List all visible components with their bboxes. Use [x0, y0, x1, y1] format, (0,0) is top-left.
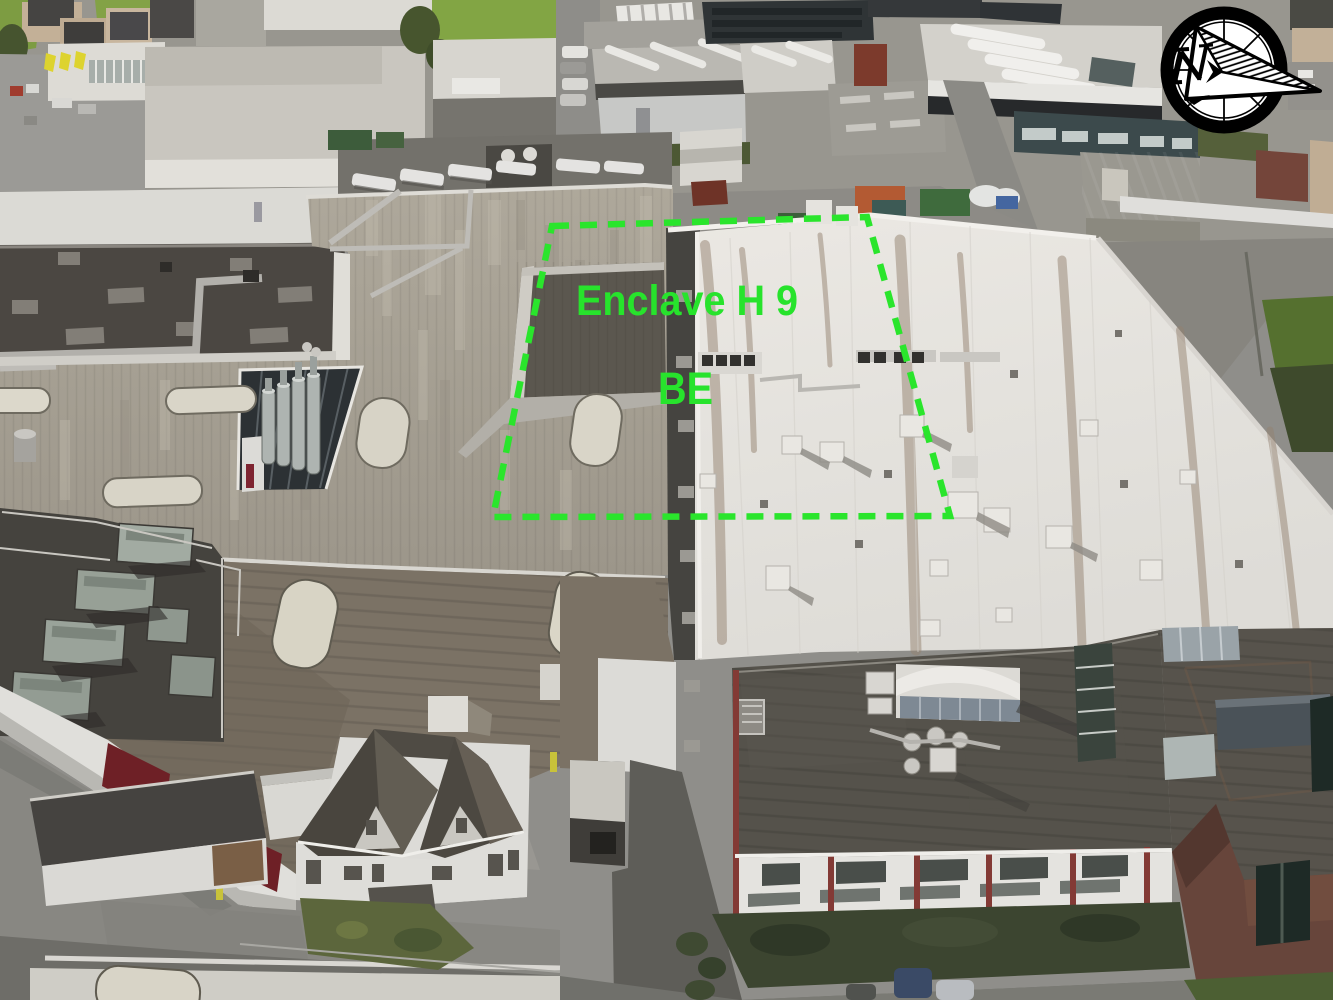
- svg-text:Enclave H 9: Enclave H 9: [576, 277, 798, 325]
- svg-text:BE: BE: [658, 363, 713, 414]
